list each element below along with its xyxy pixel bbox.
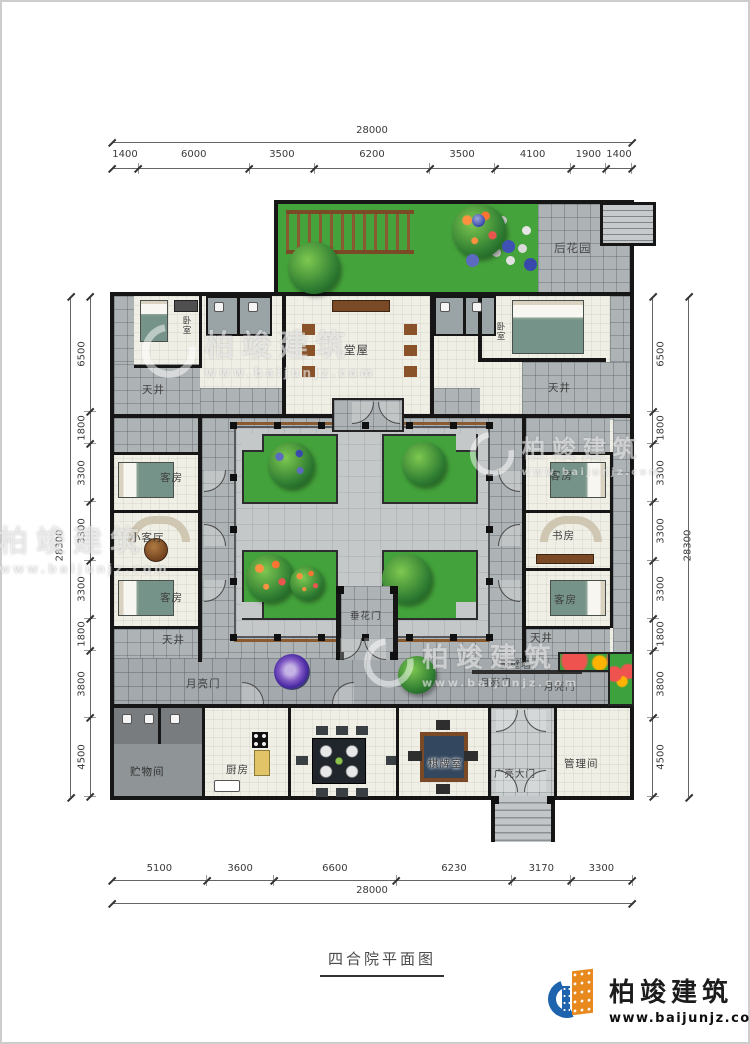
courtyard-tree-icon bbox=[290, 566, 324, 600]
dim-top-total-line bbox=[112, 142, 632, 143]
bath-left-divider bbox=[237, 298, 240, 336]
storage-divider bbox=[158, 708, 161, 744]
label-kitchen: 厨房 bbox=[226, 762, 249, 777]
dim-segment: 1400 bbox=[606, 148, 632, 168]
courtyard-tree-icon bbox=[246, 554, 294, 602]
label-skywell: 天井 bbox=[142, 382, 165, 397]
drawing-page: 28000 14006000350062003500410019001400 5… bbox=[0, 0, 750, 1044]
garden-stairs bbox=[600, 202, 656, 246]
bed-notch bbox=[456, 602, 478, 620]
label-small-living-room: 小客厅 bbox=[130, 530, 165, 545]
gate-post bbox=[491, 796, 499, 804]
gate-post bbox=[547, 796, 555, 804]
gate-post bbox=[390, 652, 398, 660]
hall-chairs-left bbox=[302, 324, 315, 386]
label-festoon-gate: 垂花门 bbox=[350, 608, 382, 622]
dim-top-segments: 14006000350062003500410019001400 bbox=[112, 148, 632, 169]
dim-segment: 3500 bbox=[430, 148, 495, 168]
label-chess-room: 棋牌室 bbox=[428, 756, 463, 771]
dim-segment: 3600 bbox=[207, 862, 274, 880]
label-study: 书房 bbox=[552, 528, 575, 543]
hall-chairs-right bbox=[404, 324, 417, 386]
corridor-south-wall bbox=[114, 704, 630, 708]
dining-table-icon bbox=[312, 738, 366, 784]
label-skywell: 天井 bbox=[162, 632, 185, 647]
stove-icon bbox=[252, 732, 268, 748]
bed-notch bbox=[242, 602, 264, 620]
dim-segment: 3300 bbox=[74, 502, 90, 560]
colonnade-columns bbox=[230, 422, 237, 429]
label-guest-room: 客房 bbox=[554, 592, 577, 607]
gate-post bbox=[390, 586, 398, 594]
dim-segment: 3800 bbox=[74, 650, 90, 717]
dim-segment: 1400 bbox=[112, 148, 138, 168]
right-roomD-wall-bottom bbox=[526, 510, 610, 513]
dim-segment: 3300 bbox=[74, 560, 90, 618]
dim-segment: 3300 bbox=[653, 444, 669, 502]
right-wing-wall-outer bbox=[610, 452, 613, 628]
dim-segment: 3500 bbox=[249, 148, 314, 168]
toilet-icon bbox=[248, 302, 258, 312]
label-grand-gate: 广亮大门 bbox=[494, 766, 536, 780]
chess-chairs bbox=[436, 720, 450, 730]
right-wing-passage bbox=[526, 418, 610, 452]
label-guest-room: 客房 bbox=[160, 470, 183, 485]
right-roomD-wall-top bbox=[526, 452, 610, 455]
dim-top-total: 28000 bbox=[112, 125, 632, 136]
label-hall: 堂屋 bbox=[344, 342, 369, 358]
dim-right-segments: 65001800330033003300180038004500 bbox=[652, 297, 669, 797]
left-wing-passage bbox=[114, 418, 198, 452]
label-screen-wall: 影壁墙 bbox=[500, 657, 532, 671]
dining-chairs bbox=[316, 726, 328, 735]
dim-segment: 4500 bbox=[74, 717, 90, 797]
right-roomE-wall-bottom bbox=[526, 568, 610, 571]
kitchen-wall-left bbox=[202, 708, 205, 796]
dim-segment: 3170 bbox=[512, 862, 571, 880]
left-roomB-wall-bottom bbox=[114, 568, 198, 571]
watermark-logo-icon bbox=[0, 509, 1, 584]
dim-segment: 1900 bbox=[571, 148, 606, 168]
label-skywell: 天井 bbox=[548, 380, 571, 395]
chess-wall-left bbox=[396, 708, 399, 796]
label-storage-room: 贮物间 bbox=[130, 764, 165, 779]
label-back-garden: 后花园 bbox=[554, 240, 592, 256]
gate-hall-wall-left bbox=[488, 708, 491, 796]
gate-hall-wall-right bbox=[554, 708, 557, 796]
label-moon-gate: 月亮门 bbox=[544, 679, 576, 693]
dim-segment: 1800 bbox=[74, 412, 90, 444]
corridor-tree-icon bbox=[398, 656, 436, 694]
dim-segment: 6000 bbox=[138, 148, 249, 168]
dim-segment: 3300 bbox=[74, 444, 90, 502]
dim-segment: 1800 bbox=[653, 412, 669, 444]
garden-shrub-icons bbox=[472, 214, 485, 227]
bed-icon bbox=[512, 300, 584, 354]
skywell-lower-left bbox=[114, 629, 198, 660]
label-moon-gate: 月亮门 bbox=[480, 675, 512, 689]
dim-segment: 6500 bbox=[74, 297, 90, 412]
dim-segment: 1800 bbox=[653, 619, 669, 651]
title-underline bbox=[320, 975, 444, 977]
dim-segment: 1800 bbox=[74, 619, 90, 651]
dim-bottom-total: 28000 bbox=[112, 885, 632, 896]
dim-segment: 3800 bbox=[653, 650, 669, 717]
label-bedroom: 卧室 bbox=[494, 322, 506, 341]
dim-segment: 4100 bbox=[495, 148, 571, 168]
dim-segment: 3300 bbox=[571, 862, 632, 880]
dim-left-total: 28300 bbox=[55, 516, 66, 576]
courtyard-tree-icon bbox=[402, 442, 446, 486]
garden-tree-icon bbox=[288, 242, 340, 294]
kitchen-counter bbox=[254, 750, 270, 776]
logo-building-icon bbox=[572, 969, 593, 1016]
sink-icon bbox=[144, 714, 154, 724]
left-roomA-wall-bottom bbox=[114, 510, 198, 513]
left-roomC-wall-bottom bbox=[114, 626, 198, 629]
desk-icon bbox=[536, 554, 594, 564]
corner-planter-v bbox=[608, 652, 634, 706]
hall-altar-table bbox=[332, 300, 390, 312]
toilet-icon bbox=[170, 714, 180, 724]
toilet-icon bbox=[440, 302, 450, 312]
right-roomF-wall-bottom bbox=[526, 626, 610, 629]
toilet-icon bbox=[122, 714, 132, 724]
gate-post bbox=[336, 586, 344, 594]
dim-bottom-total-line bbox=[112, 903, 632, 904]
dim-segment: 4500 bbox=[653, 717, 669, 797]
label-manager-room: 管理间 bbox=[564, 756, 599, 771]
left-wing-wall bbox=[198, 418, 202, 662]
dim-segment: 6230 bbox=[396, 862, 512, 880]
brand-logo-icon bbox=[548, 968, 602, 1030]
brand-url: www.baijunjz.com bbox=[609, 1011, 750, 1026]
skywell-upper-right bbox=[522, 362, 630, 420]
dim-bottom-segments: 510036006600623031703300 bbox=[112, 862, 632, 881]
brand-name: 柏竣建筑 bbox=[609, 972, 750, 1009]
dim-right-total-line bbox=[688, 297, 689, 797]
drawing-title: 四合院平面图 bbox=[297, 948, 467, 969]
right-outer-corridor bbox=[613, 420, 630, 660]
dim-segment: 6200 bbox=[314, 148, 429, 168]
toilet-icon bbox=[472, 302, 482, 312]
label-moon-gate: 月亮门 bbox=[186, 676, 221, 691]
sink-icon bbox=[214, 780, 240, 792]
toilet-icon bbox=[214, 302, 224, 312]
hall-wall-right bbox=[430, 296, 434, 418]
dim-segment: 5100 bbox=[112, 862, 207, 880]
flower-pot-icon bbox=[274, 654, 310, 690]
logo-building2-icon bbox=[562, 986, 570, 1016]
label-guest-room: 客房 bbox=[160, 590, 183, 605]
dim-left-total-line bbox=[70, 297, 71, 797]
left-roomA-wall-top bbox=[114, 452, 198, 455]
dim-segment: 6600 bbox=[274, 862, 397, 880]
entrance-steps bbox=[491, 796, 555, 842]
dim-segment: 6500 bbox=[653, 297, 669, 412]
courtyard-tree-icon bbox=[268, 442, 314, 488]
label-guest-room: 客房 bbox=[550, 468, 573, 483]
dim-segment: 3300 bbox=[653, 502, 669, 560]
dim-left-segments: 65001800330033003300180038004500 bbox=[74, 297, 91, 797]
bed-notch bbox=[242, 434, 264, 452]
dim-segment: 3300 bbox=[653, 560, 669, 618]
dining-wall-left bbox=[288, 708, 291, 796]
hall-wall-left bbox=[282, 296, 286, 418]
label-skywell: 天井 bbox=[530, 630, 553, 645]
label-bedroom: 卧室 bbox=[180, 316, 192, 335]
garden-flower-tree-icon bbox=[452, 204, 506, 258]
bath-right-divider bbox=[463, 298, 466, 336]
bedroom-right-wall-bottom bbox=[478, 358, 606, 362]
bed-notch bbox=[456, 434, 478, 452]
brand-logo: 柏竣建筑 www.baijunjz.com bbox=[548, 968, 750, 1030]
